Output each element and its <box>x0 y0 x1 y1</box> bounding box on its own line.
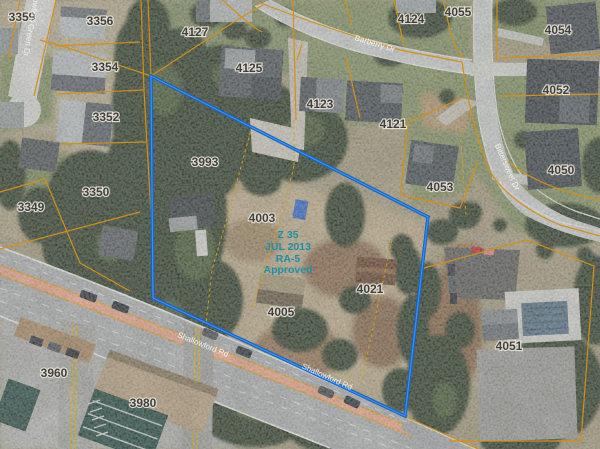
svg-text:4053: 4053 <box>427 180 454 194</box>
svg-text:4054: 4054 <box>545 23 572 37</box>
svg-text:Approved: Approved <box>263 264 312 276</box>
svg-text:4050: 4050 <box>548 163 575 177</box>
svg-text:3960: 3960 <box>41 366 68 380</box>
svg-text:4051: 4051 <box>496 339 523 353</box>
svg-text:3980: 3980 <box>130 396 157 410</box>
svg-text:3349: 3349 <box>18 200 45 214</box>
svg-text:3354: 3354 <box>92 60 119 74</box>
svg-text:3993: 3993 <box>192 155 219 169</box>
svg-text:4121: 4121 <box>380 117 407 131</box>
svg-text:4005: 4005 <box>268 305 295 319</box>
svg-text:4125: 4125 <box>236 61 263 75</box>
svg-text:3350: 3350 <box>83 185 110 199</box>
svg-text:3352: 3352 <box>93 110 120 124</box>
svg-text:4052: 4052 <box>543 83 570 97</box>
svg-text:4055: 4055 <box>445 5 472 19</box>
svg-text:4123: 4123 <box>307 97 334 111</box>
svg-text:4021: 4021 <box>357 282 384 296</box>
svg-text:3356: 3356 <box>87 14 114 28</box>
svg-text:JUL 2013: JUL 2013 <box>265 241 311 253</box>
svg-text:4127: 4127 <box>182 25 209 39</box>
svg-text:4124: 4124 <box>398 12 425 26</box>
svg-text:Z 35: Z 35 <box>277 229 298 241</box>
svg-text:4003: 4003 <box>249 211 276 225</box>
